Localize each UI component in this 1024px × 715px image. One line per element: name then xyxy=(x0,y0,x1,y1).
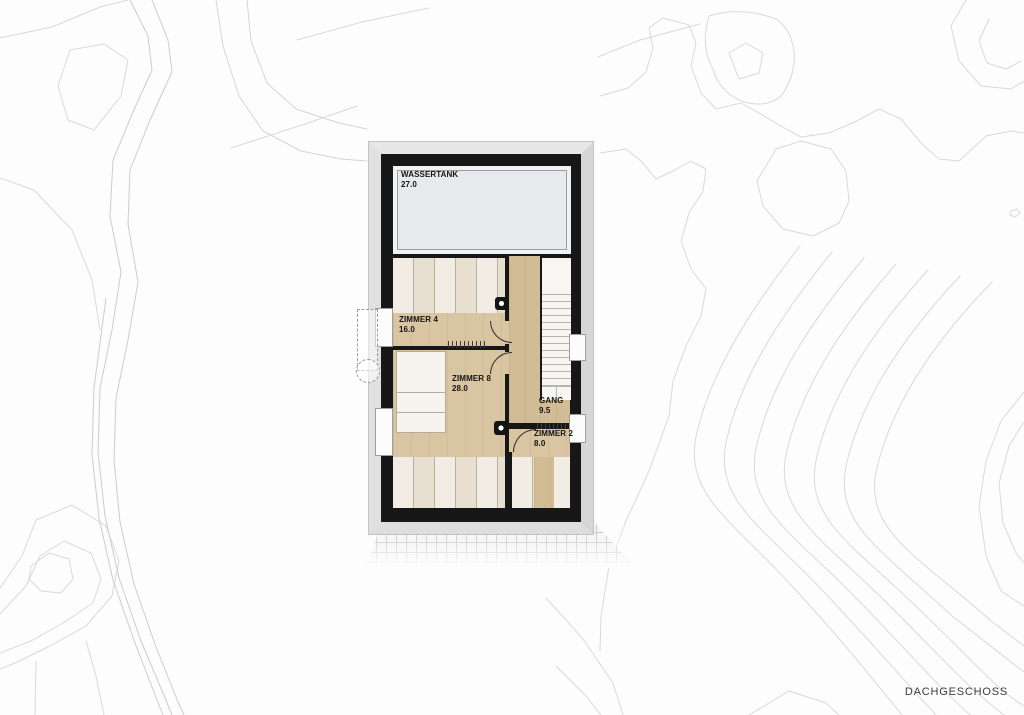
sloped-ceiling-hatch-south-left xyxy=(393,457,505,508)
room-label-gang: GANG 9.5 xyxy=(539,396,563,416)
room-name: ZIMMER 4 xyxy=(399,315,438,325)
knee-wall-ticks-center xyxy=(448,341,488,348)
column-upper xyxy=(495,297,508,310)
sheet-title: DACHGESCHOSS xyxy=(905,686,1008,698)
sloped-ceiling-hatch-north xyxy=(393,258,505,313)
room-label-zimmer8: ZIMMER 8 28.0 xyxy=(452,374,491,394)
room-label-zimmer4: ZIMMER 4 16.0 xyxy=(399,315,438,335)
room-area: 28.0 xyxy=(452,384,491,394)
stair-treads xyxy=(542,288,571,387)
bed-line xyxy=(397,392,445,393)
room-label-wassertank: WASSERTANK 27.0 xyxy=(401,170,458,190)
room-area: 8.0 xyxy=(534,439,573,449)
room-name: WASSERTANK xyxy=(401,170,458,180)
room-label-zimmer2: ZIMMER 2 8.0 xyxy=(534,429,573,449)
column-lower xyxy=(494,421,508,435)
hatch-wood-band xyxy=(534,457,554,508)
room-name: GANG xyxy=(539,396,563,406)
chimney-flue-circle xyxy=(356,359,380,383)
room-area: 16.0 xyxy=(399,325,438,335)
room-area: 27.0 xyxy=(401,180,458,190)
window-west-zimmer8 xyxy=(375,408,393,456)
corridor-floor-strip xyxy=(509,256,540,423)
room-area: 9.5 xyxy=(539,406,563,416)
window-east-stairs xyxy=(569,334,586,361)
bed-line xyxy=(397,412,445,413)
floor-plan-sheet: WASSERTANK 27.0 ZIMMER 4 16.0 ZIMMER 8 2… xyxy=(0,0,1024,715)
room-name: ZIMMER 2 xyxy=(534,429,573,439)
room-name: ZIMMER 8 xyxy=(452,374,491,384)
bed xyxy=(396,351,446,433)
